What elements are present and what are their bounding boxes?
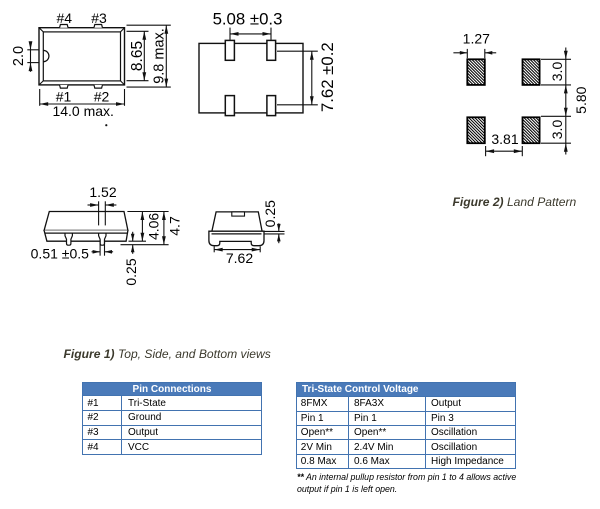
svg-text:0.25: 0.25 <box>123 258 139 285</box>
svg-text:4.7: 4.7 <box>167 216 183 236</box>
svg-text:0.25: 0.25 <box>262 200 278 227</box>
svg-text:7.62 ±0.2: 7.62 ±0.2 <box>318 42 337 112</box>
svg-text:4.06: 4.06 <box>145 213 161 240</box>
svg-text:7.62: 7.62 <box>226 250 253 266</box>
svg-text:3.81: 3.81 <box>491 131 518 147</box>
svg-text:8.65: 8.65 <box>129 41 146 71</box>
svg-text:#4: #4 <box>57 10 73 26</box>
svg-text:5.08 ±0.3: 5.08 ±0.3 <box>213 10 283 29</box>
svg-text:1.52: 1.52 <box>89 184 116 200</box>
svg-text:3.0: 3.0 <box>549 62 565 82</box>
svg-text:5.80: 5.80 <box>573 86 589 113</box>
svg-text:14.0 max.: 14.0 max. <box>52 103 113 119</box>
svg-text:1.27: 1.27 <box>463 31 490 47</box>
svg-text:0.51 ±0.5: 0.51 ±0.5 <box>31 246 89 262</box>
svg-text:9.8 max.: 9.8 max. <box>152 28 168 84</box>
svg-text:3.0: 3.0 <box>549 120 565 140</box>
svg-text:#3: #3 <box>91 10 107 26</box>
svg-text:2.0: 2.0 <box>11 46 27 66</box>
